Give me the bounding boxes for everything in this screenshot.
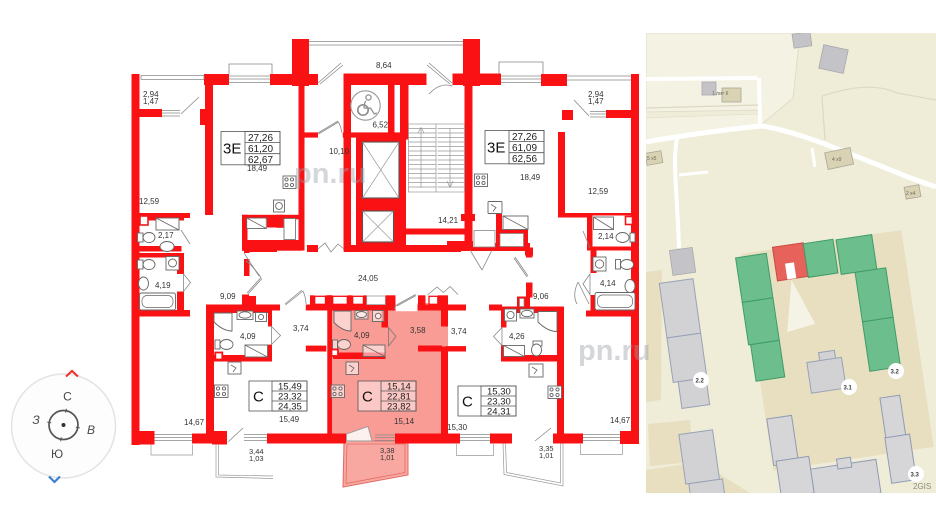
svg-text:pn.ru: pn.ru [578,335,651,367]
svg-text:23,82: 23,82 [387,402,411,413]
svg-text:4,09: 4,09 [240,332,256,341]
svg-text:14,67: 14,67 [610,416,631,425]
svg-text:З: З [32,413,40,427]
svg-text:4,14: 4,14 [600,279,616,288]
svg-text:4,09: 4,09 [354,331,370,340]
svg-text:С: С [63,390,72,404]
svg-text:62,56: 62,56 [512,154,537,165]
svg-text:3Е: 3Е [487,140,505,157]
svg-text:1,01: 1,01 [380,453,395,462]
svg-text:24,31: 24,31 [487,407,511,418]
svg-text:24,35: 24,35 [278,402,302,413]
svg-text:2GIS: 2GIS [913,482,931,491]
svg-text:10,10: 10,10 [329,147,350,156]
svg-text:4,26: 4,26 [509,332,525,341]
svg-text:С: С [362,389,373,406]
svg-text:61,20: 61,20 [248,144,273,155]
svg-text:С: С [253,389,264,406]
svg-text:14,67: 14,67 [184,418,205,427]
svg-text:2 х4: 2 х4 [906,191,916,197]
svg-text:3,58: 3,58 [410,326,426,335]
svg-text:3.3: 3.3 [911,473,920,479]
svg-text:24,05: 24,05 [358,274,379,283]
svg-text:15,49: 15,49 [279,415,300,424]
svg-text:12,59: 12,59 [139,197,160,206]
svg-text:1 лит К: 1 лит К [712,91,729,97]
svg-text:3Е: 3Е [223,141,241,158]
svg-text:2.2: 2.2 [696,379,705,385]
svg-text:4,19: 4,19 [155,281,171,290]
svg-text:14,21: 14,21 [438,216,459,225]
svg-text:27,26: 27,26 [248,133,273,144]
svg-text:6,52: 6,52 [373,121,389,130]
svg-text:8,64: 8,64 [376,61,392,70]
svg-text:61,09: 61,09 [512,143,537,154]
svg-text:Ю: Ю [51,447,63,461]
svg-text:С: С [462,394,473,411]
svg-text:9,06: 9,06 [533,292,549,301]
svg-text:18,49: 18,49 [520,173,541,182]
svg-text:2,14: 2,14 [598,232,614,241]
svg-text:5 х5: 5 х5 [647,156,657,162]
svg-text:1,01: 1,01 [539,451,554,460]
svg-text:12,59: 12,59 [588,187,609,196]
svg-text:3,74: 3,74 [451,327,467,336]
svg-text:9,09: 9,09 [220,292,236,301]
svg-text:62,67: 62,67 [248,155,273,166]
svg-text:15,14: 15,14 [394,417,415,426]
svg-text:4 х9: 4 х9 [832,157,842,163]
svg-text:1,47: 1,47 [143,97,159,106]
svg-text:15,30: 15,30 [447,423,468,432]
svg-text:В: В [87,423,95,437]
svg-text:27,26: 27,26 [512,132,537,143]
svg-text:1,47: 1,47 [588,97,604,106]
svg-text:3.2: 3.2 [891,370,900,376]
svg-text:2,17: 2,17 [158,231,174,240]
svg-text:pn.ru: pn.ru [294,158,367,190]
svg-text:3,74: 3,74 [293,324,309,333]
svg-text:1,03: 1,03 [249,454,264,463]
svg-text:3.1: 3.1 [844,386,853,392]
